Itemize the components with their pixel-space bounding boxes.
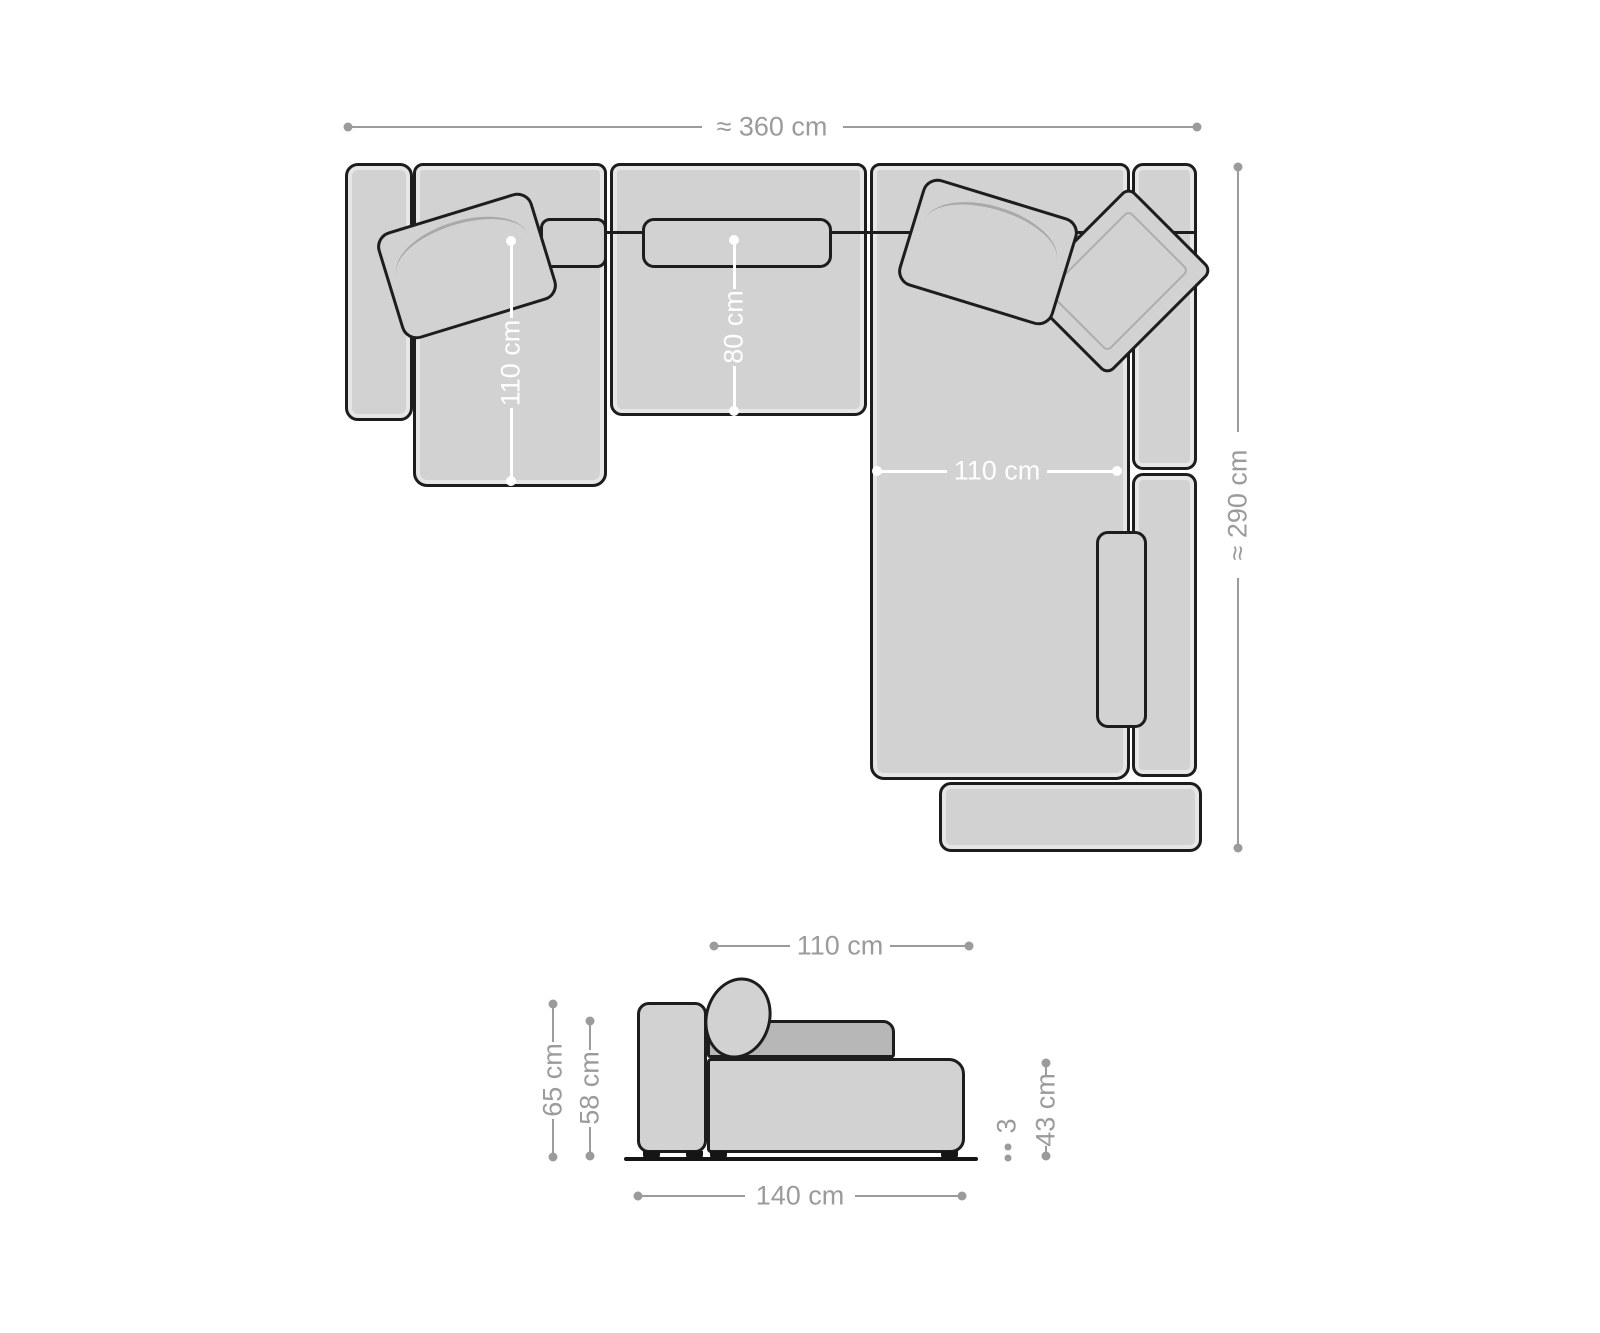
side-seat-body [707, 1058, 965, 1153]
dim-endpoint-dot [958, 1192, 967, 1201]
dim-line-segment [843, 126, 1193, 128]
dim-label: 80 cm [721, 290, 748, 364]
dim-endpoint-dot [729, 406, 739, 416]
dim-endpoint-dot [1234, 844, 1243, 853]
back-cushion-right [1096, 531, 1147, 728]
dim-label: 3 [994, 1118, 1021, 1133]
dim-endpoint-dot [1193, 123, 1202, 132]
dim-line-segment [510, 245, 513, 318]
dim-label: ≈ 360 cm [717, 114, 828, 141]
dim-label: 110 cm [498, 320, 525, 407]
dim-label: 140 cm [756, 1183, 845, 1210]
dim-line-segment [552, 1119, 554, 1153]
module-ottoman [939, 782, 1202, 852]
dim-endpoint-dot [965, 942, 974, 951]
dim-endpoint-dot [506, 476, 516, 486]
dim-label: 110 cm [954, 458, 1041, 485]
dim-endpoint-dot [1005, 1155, 1012, 1162]
dim-line-segment [1237, 578, 1239, 844]
dim-endpoint-dot [1112, 466, 1122, 476]
dim-line-segment [642, 1195, 745, 1197]
dim-endpoint-dot [1042, 1152, 1051, 1161]
dim-line-segment [890, 945, 965, 947]
dim-endpoint-dot [1005, 1144, 1012, 1151]
dim-line-segment [1237, 171, 1239, 432]
dim-line-segment [855, 1195, 958, 1197]
dim-endpoint-dot [549, 1153, 558, 1162]
dim-label: 58 cm [577, 1051, 604, 1125]
dim-line-segment [510, 408, 513, 477]
dim-line-segment [1047, 470, 1113, 473]
dim-line-segment [352, 126, 702, 128]
dim-label: 65 cm [540, 1043, 567, 1117]
dim-label: 110 cm [797, 933, 884, 960]
dim-line-segment [718, 945, 790, 947]
dim-line-segment [552, 1008, 554, 1042]
dim-label: ≈ 290 cm [1225, 450, 1252, 561]
dim-line-segment [589, 1025, 591, 1050]
ground-line [624, 1157, 978, 1161]
dim-line-segment [733, 244, 736, 289]
side-backrest [637, 1002, 707, 1153]
dim-line-segment [881, 470, 947, 473]
sofa-dimension-diagram: ≈ 360 cm ≈ 290 cm 110 cm 80 cm [0, 0, 1600, 1333]
dim-endpoint-dot [586, 1152, 595, 1161]
dim-line-segment [733, 366, 736, 407]
dim-line-segment [589, 1127, 591, 1152]
dim-label: 43 cm [1033, 1073, 1060, 1147]
